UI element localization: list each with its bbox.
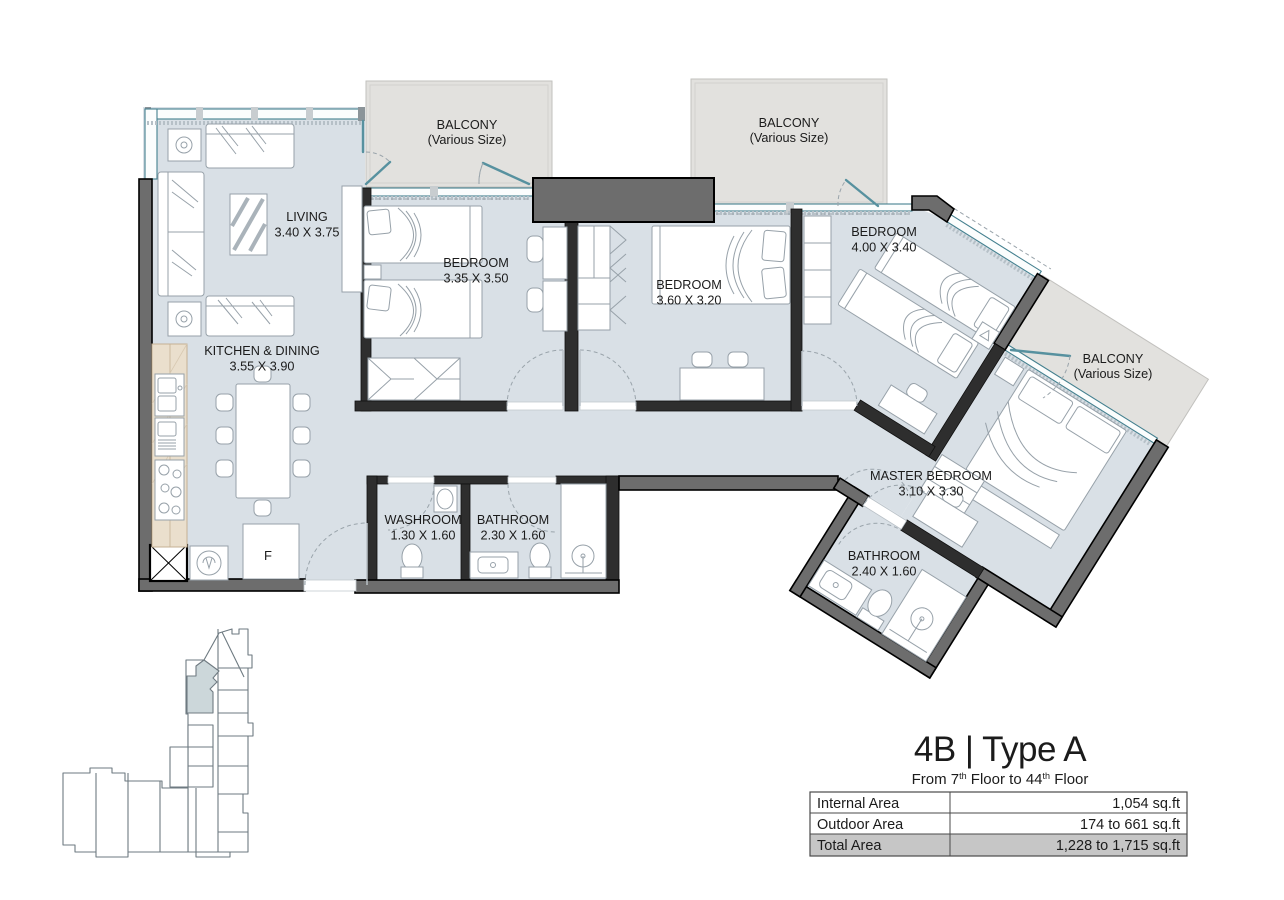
svg-text:KITCHEN & DINING: KITCHEN & DINING [204,344,320,358]
svg-text:LIVING: LIVING [286,210,328,224]
svg-text:BATHROOM: BATHROOM [848,549,920,563]
svg-text:BEDROOM: BEDROOM [656,278,722,292]
svg-text:(Various Size): (Various Size) [1074,367,1153,381]
svg-text:(Various Size): (Various Size) [428,133,507,147]
svg-text:WASHROOM: WASHROOM [384,513,461,527]
svg-text:BALCONY: BALCONY [437,118,498,132]
svg-text:2.40 X 1.60: 2.40 X 1.60 [852,565,917,579]
svg-text:1,228 to 1,715 sq.ft: 1,228 to 1,715 sq.ft [1056,838,1180,854]
svg-text:BEDROOM: BEDROOM [443,256,509,270]
svg-text:2.30 X 1.60: 2.30 X 1.60 [481,529,546,543]
svg-text:1.30 X 1.60: 1.30 X 1.60 [391,529,456,543]
svg-text:3.55 X 3.90: 3.55 X 3.90 [230,360,295,374]
svg-text:3.35 X 3.50: 3.35 X 3.50 [444,272,509,286]
svg-text:3.60 X 3.20: 3.60 X 3.20 [657,294,722,308]
svg-text:3.10 X 3.30: 3.10 X 3.30 [899,485,964,499]
svg-text:BALCONY: BALCONY [759,116,820,130]
svg-text:3.40 X 3.75: 3.40 X 3.75 [275,226,340,240]
svg-text:174 to 661 sq.ft: 174 to 661 sq.ft [1080,817,1180,833]
svg-text:Internal Area: Internal Area [817,796,900,812]
svg-text:BATHROOM: BATHROOM [477,513,549,527]
svg-text:(Various Size): (Various Size) [750,131,829,145]
svg-text:4.00 X 3.40: 4.00 X 3.40 [852,241,917,255]
svg-text:Outdoor Area: Outdoor Area [817,817,904,833]
svg-text:1,054 sq.ft: 1,054 sq.ft [1112,796,1180,812]
svg-text:BALCONY: BALCONY [1083,352,1144,366]
svg-text:Total Area: Total Area [817,838,882,854]
svg-text:F: F [264,548,272,563]
svg-text:MASTER BEDROOM: MASTER BEDROOM [870,469,992,483]
svg-text:BEDROOM: BEDROOM [851,225,917,239]
svg-text:4B | Type A: 4B | Type A [914,730,1087,769]
svg-text:From 7th Floor to 44th Floor: From 7th Floor to 44th Floor [912,771,1089,788]
